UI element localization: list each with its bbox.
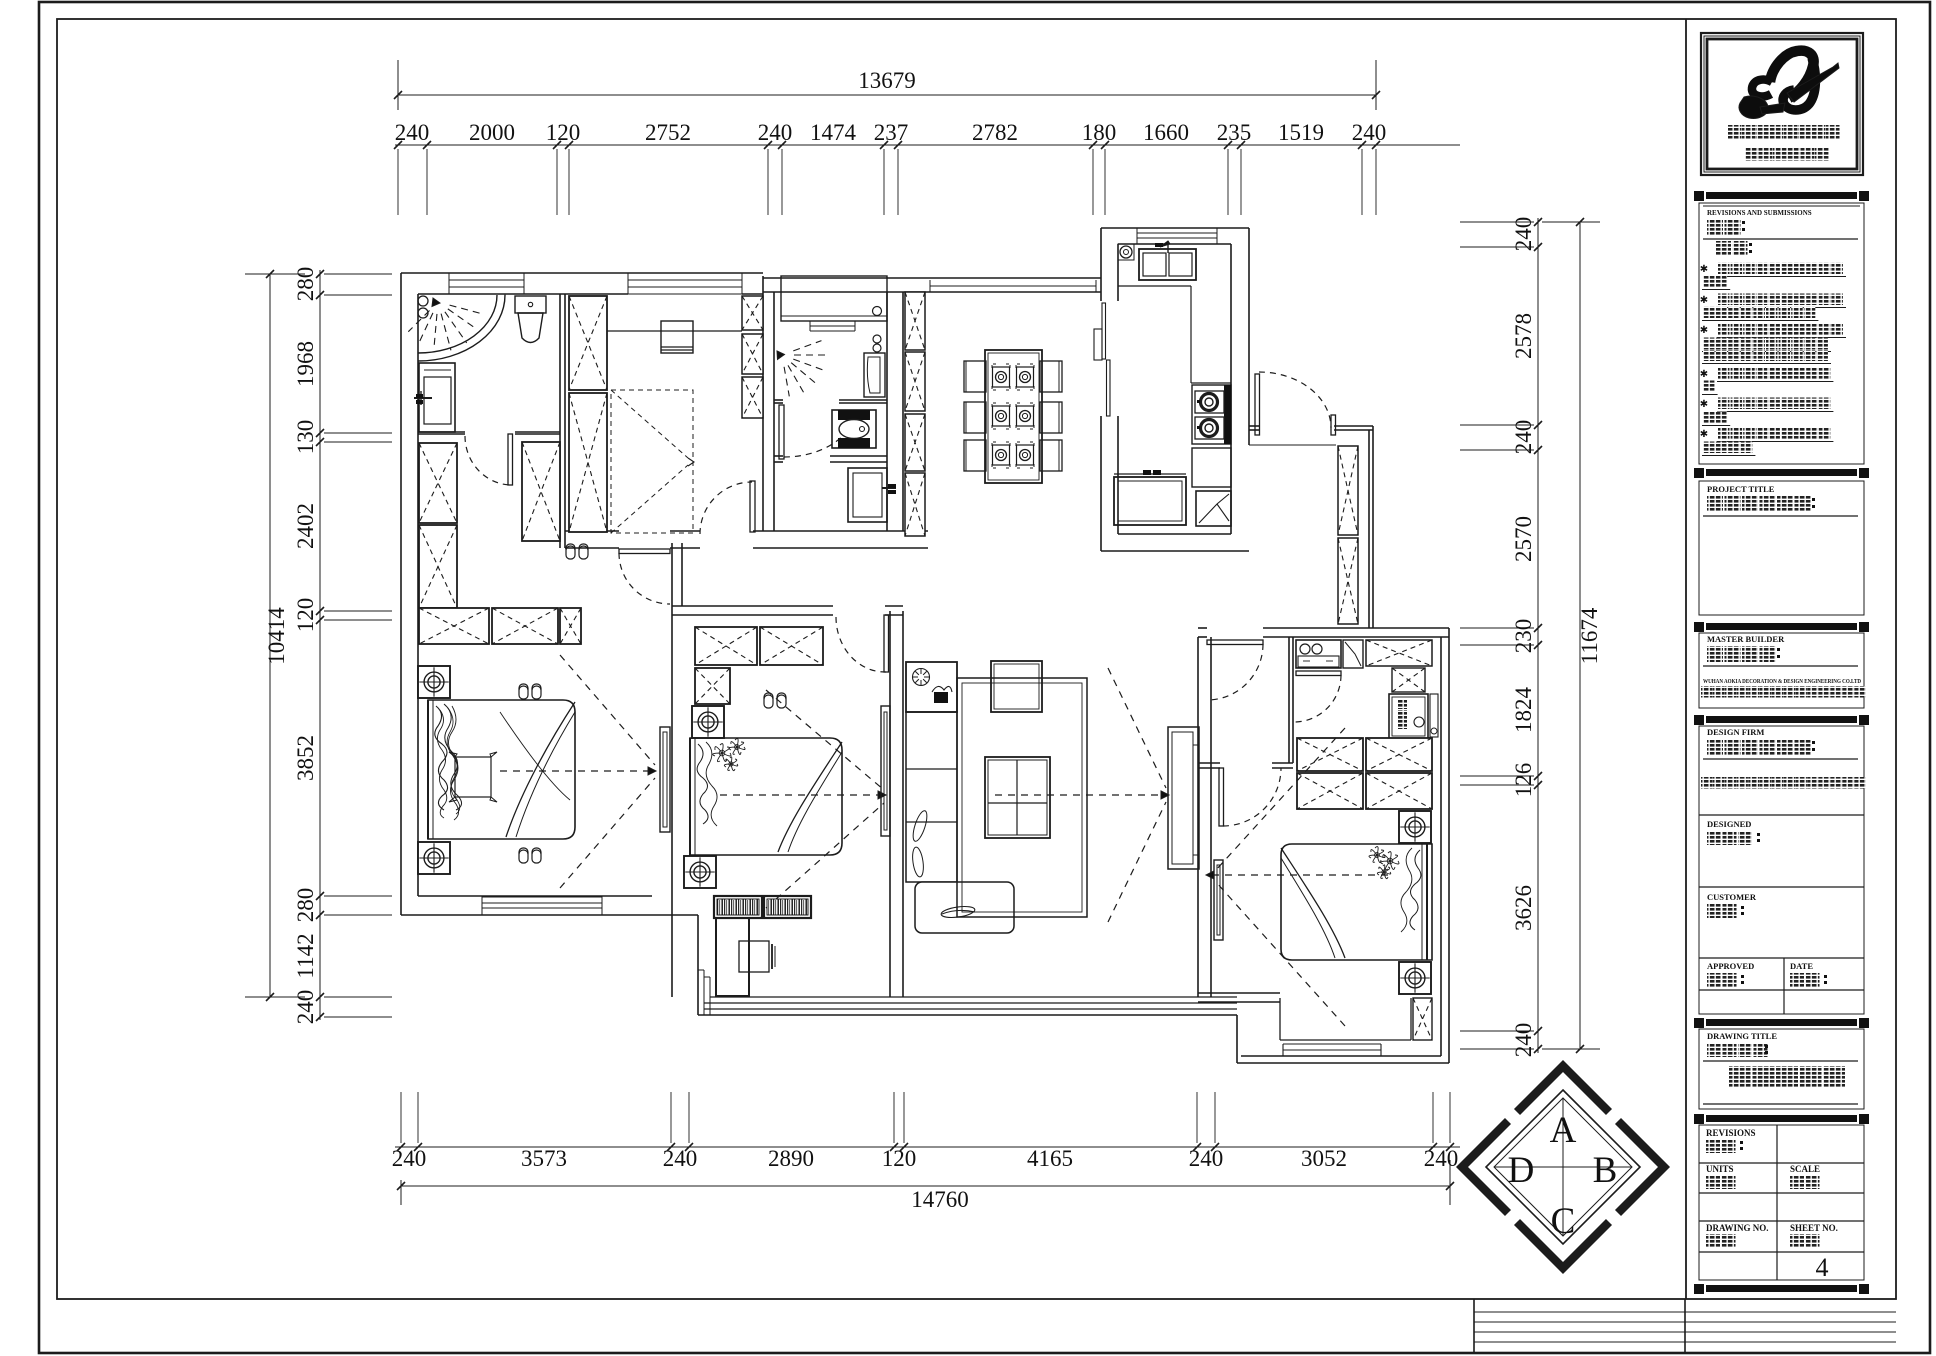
svg-text:SHEET NO.: SHEET NO. [1790,1223,1838,1233]
svg-text:2402: 2402 [293,503,318,549]
svg-text:2782: 2782 [972,120,1018,145]
svg-text:APPROVED: APPROVED [1707,961,1754,971]
svg-text:2752: 2752 [645,120,691,145]
svg-text:DESIGNED: DESIGNED [1707,819,1751,829]
svg-text:240: 240 [293,990,318,1025]
svg-text:240: 240 [1189,1146,1224,1171]
svg-text:REVISIONS: REVISIONS [1706,1128,1756,1138]
svg-text:230: 230 [1511,619,1536,654]
svg-text:A: A [1550,1110,1577,1151]
svg-text:240: 240 [1511,217,1536,252]
svg-text:240: 240 [1511,1023,1536,1058]
svg-text:UNITS: UNITS [1706,1164,1734,1174]
svg-text:2570: 2570 [1511,516,1536,562]
svg-text:DESIGN FIRM: DESIGN FIRM [1707,727,1764,737]
svg-text:240: 240 [1424,1146,1459,1171]
svg-text:SCALE: SCALE [1790,1164,1820,1174]
svg-text:✱: ✱ [1700,399,1708,410]
svg-text:PROJECT TITLE: PROJECT TITLE [1707,484,1775,494]
svg-text:B: B [1593,1150,1618,1191]
svg-text:REVISIONS AND SUBMISSIONS: REVISIONS AND SUBMISSIONS [1707,209,1812,217]
svg-text:10414: 10414 [264,607,289,665]
svg-text:✱: ✱ [1700,295,1708,306]
svg-text:1474: 1474 [810,120,857,145]
svg-text:DRAWING TITLE: DRAWING TITLE [1707,1031,1777,1041]
svg-text:280: 280 [293,267,318,302]
svg-text:280: 280 [293,888,318,923]
svg-text:14760: 14760 [911,1187,969,1212]
svg-text:✱: ✱ [1700,429,1708,440]
svg-text:C: C [1551,1201,1576,1242]
svg-text:CUSTOMER: CUSTOMER [1707,892,1757,902]
svg-text:11674: 11674 [1577,607,1602,664]
svg-text:120: 120 [546,120,581,145]
svg-text:240: 240 [663,1146,698,1171]
svg-text:✱: ✱ [1700,369,1708,380]
svg-text:235: 235 [1217,120,1252,145]
svg-text:3626: 3626 [1511,885,1536,931]
svg-text:2890: 2890 [768,1146,814,1171]
svg-text:1968: 1968 [293,341,318,387]
svg-text:4165: 4165 [1027,1146,1073,1171]
svg-text:180: 180 [1082,120,1117,145]
svg-text:1660: 1660 [1143,120,1189,145]
svg-text:13679: 13679 [858,68,916,93]
svg-text:240: 240 [758,120,793,145]
svg-text:DATE: DATE [1790,961,1813,971]
svg-text:1142: 1142 [293,933,318,978]
svg-text:DRAWING NO.: DRAWING NO. [1706,1223,1769,1233]
svg-text:240: 240 [392,1146,427,1171]
svg-text:3573: 3573 [521,1146,567,1171]
svg-text:3052: 3052 [1301,1146,1347,1171]
svg-text:240: 240 [1352,120,1387,145]
svg-text:2578: 2578 [1511,313,1536,359]
svg-text:130: 130 [293,420,318,455]
svg-text:✱: ✱ [1700,264,1708,275]
svg-text:WUHAN AOKIA DECORATION & DESIG: WUHAN AOKIA DECORATION & DESIGN ENGINEER… [1703,678,1861,685]
svg-text:120: 120 [882,1146,917,1171]
svg-text:1824: 1824 [1511,687,1536,734]
svg-text:1519: 1519 [1278,120,1324,145]
svg-text:240: 240 [1511,420,1536,455]
svg-text:120: 120 [293,598,318,633]
svg-text:237: 237 [874,120,909,145]
svg-text:MASTER BUILDER: MASTER BUILDER [1707,634,1785,644]
svg-text:3852: 3852 [293,735,318,781]
svg-text:2000: 2000 [469,120,515,145]
svg-text:240: 240 [395,120,430,145]
svg-text:126: 126 [1511,763,1536,798]
svg-text:✱: ✱ [1700,325,1708,336]
svg-text:4: 4 [1816,1253,1829,1282]
svg-text:D: D [1508,1150,1535,1191]
